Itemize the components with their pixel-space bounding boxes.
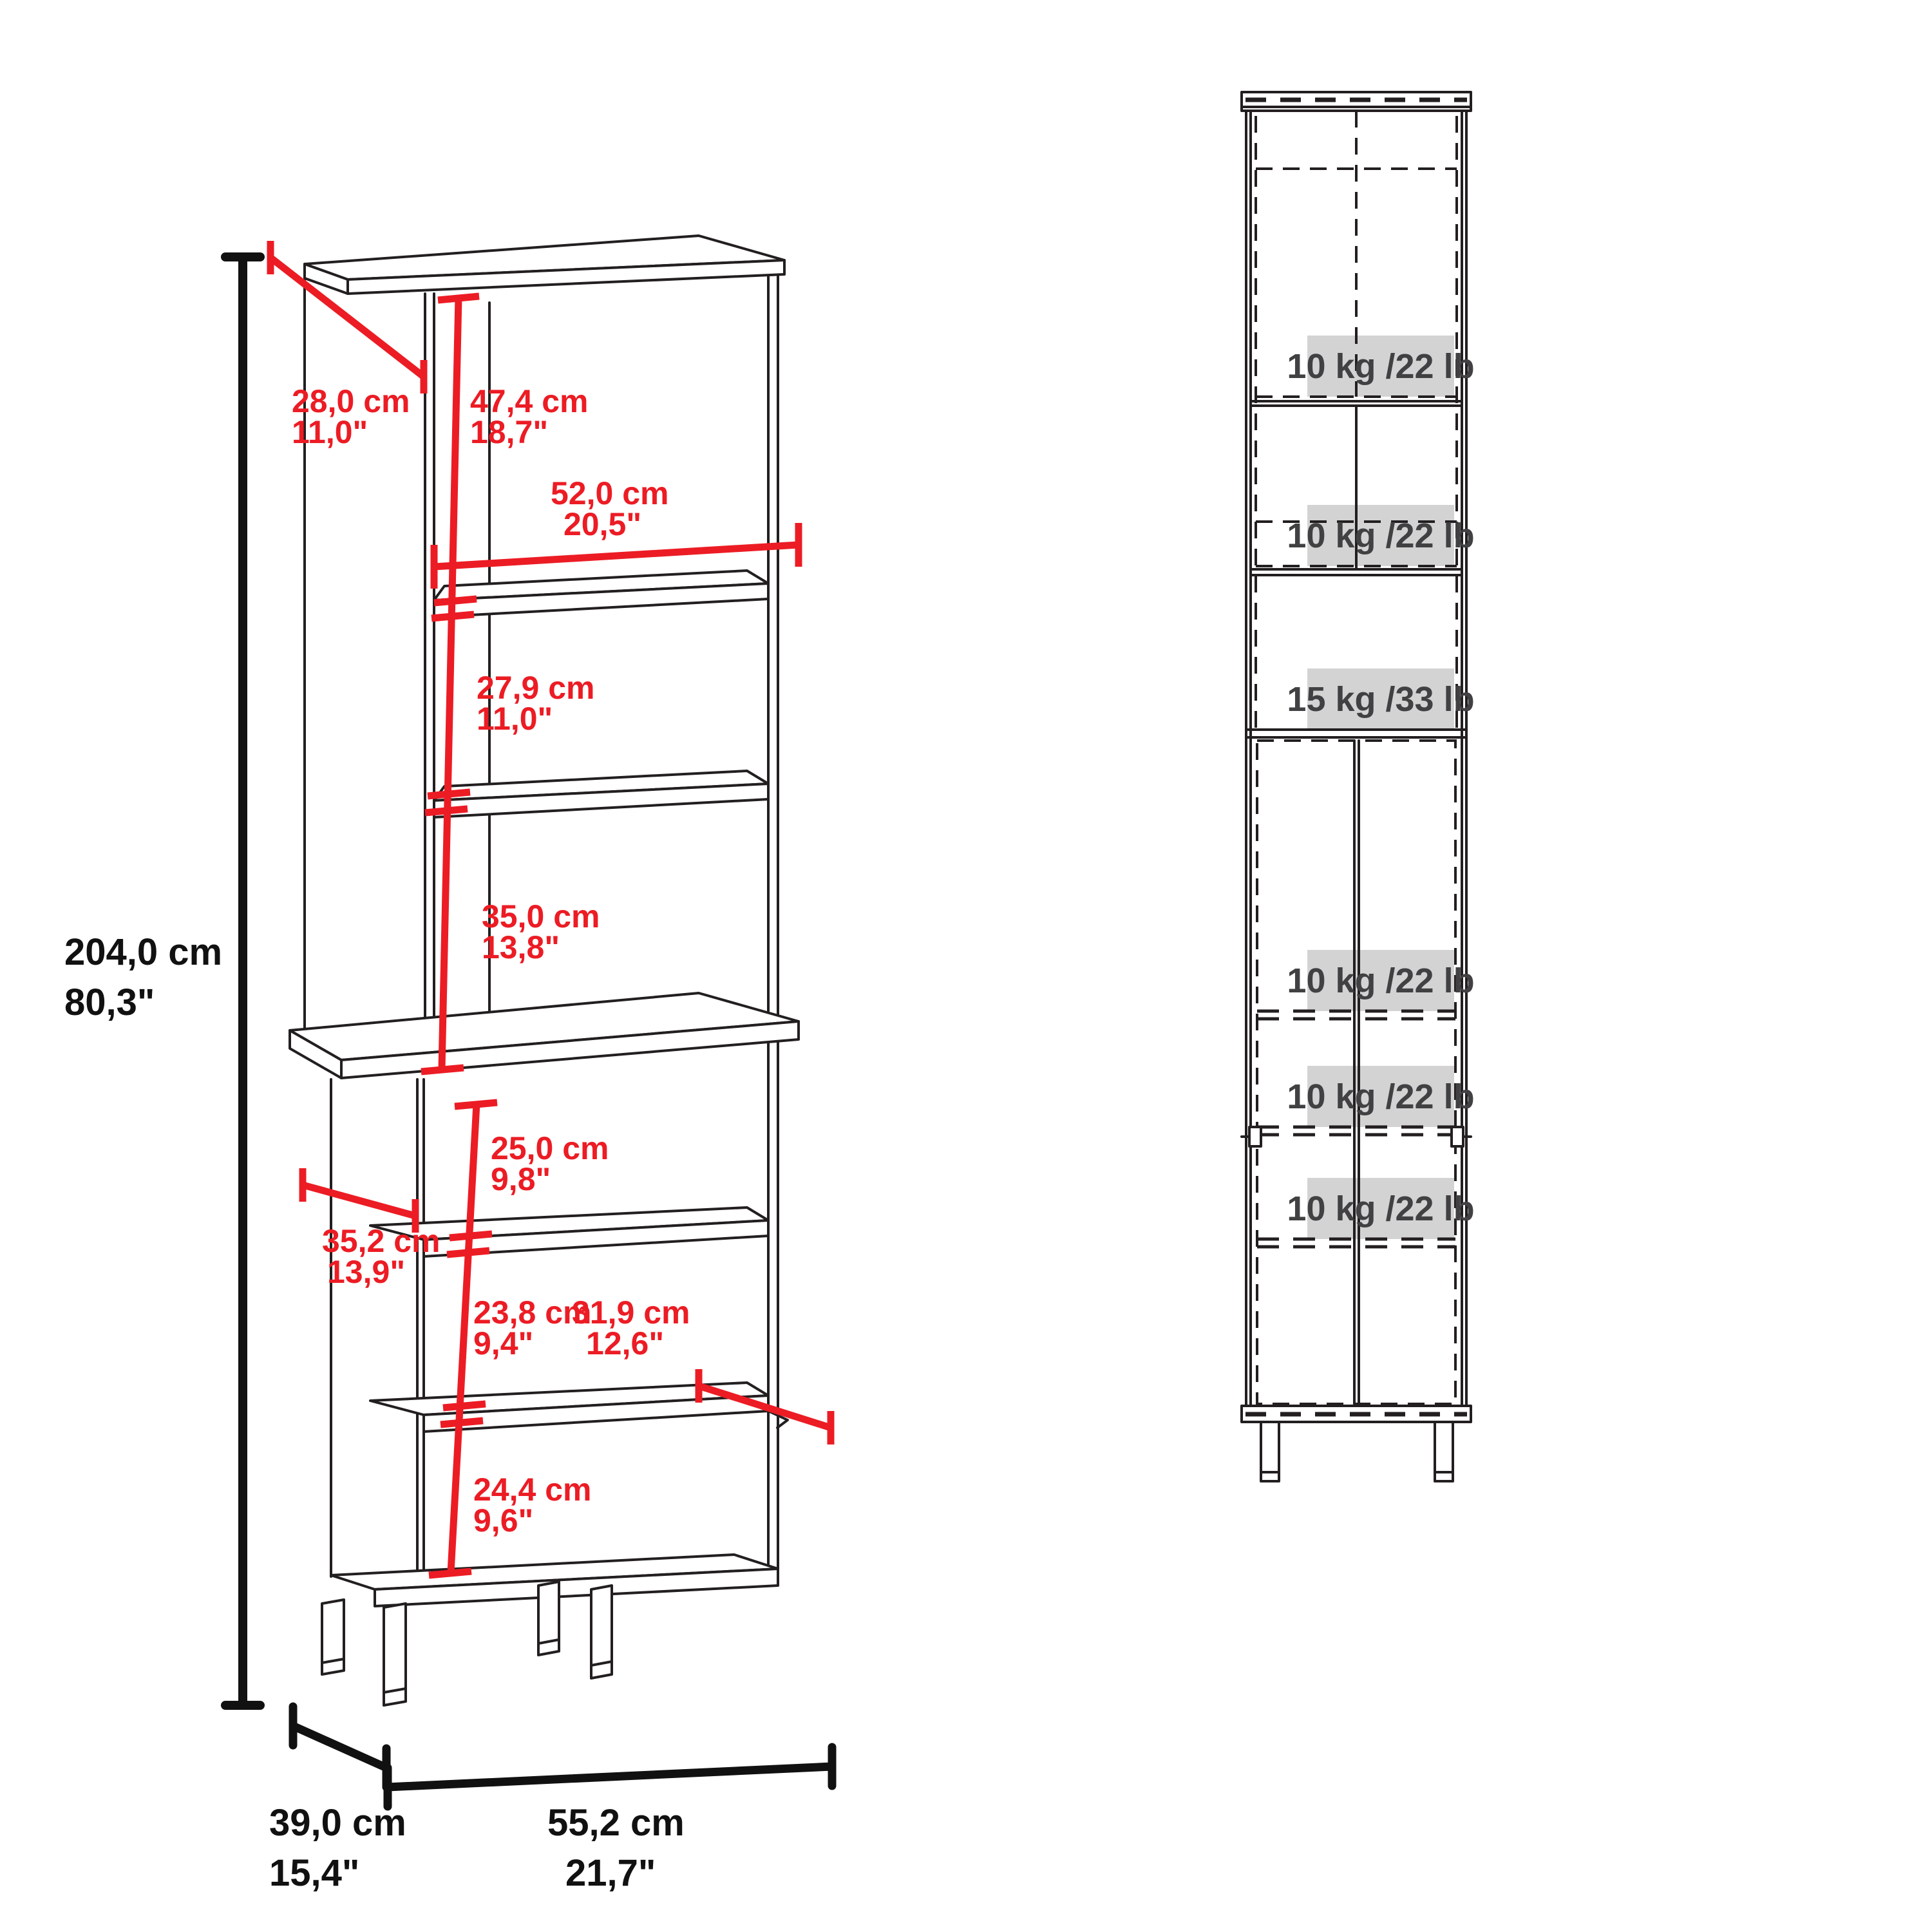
hinge-right (1452, 1127, 1463, 1146)
base-mid-label-in: 9,4" (473, 1325, 533, 1361)
base-hidden-shelf-3 (1257, 1239, 1455, 1247)
left-view-perspective-drawing: 204,0 cm 80,3" 28,0 cm 11,0" 47,4 cm 18,… (64, 236, 832, 1894)
hinge-left (1249, 1127, 1261, 1146)
base-depth-label-in: 13,9" (327, 1254, 405, 1290)
furniture-dimension-diagram-page: 204,0 cm 80,3" 28,0 cm 11,0" 47,4 cm 18,… (0, 0, 1932, 1932)
hutch-bottom-label-in: 13,8" (482, 929, 560, 965)
right-view-front-elevation: 10 kg /22 lb 10 kg /22 lb 15 kg /33 lb 1… (1242, 92, 1475, 1481)
hutch-mid-label-in: 11,0" (477, 701, 553, 737)
bottom-depth-dim-line (293, 1707, 386, 1787)
dim-overall-height: 204,0 cm 80,3" (64, 257, 260, 1705)
base-hidden-shelf-2 (1257, 1127, 1455, 1135)
bottom-width-label-cm: 55,2 cm (547, 1802, 685, 1844)
dim-bottom-width: 55,2 cm 21,7" (388, 1747, 832, 1894)
bottom-width-dim-line (388, 1747, 832, 1806)
dim-base-sections: 25,0 cm 9,8" 23,8 cm 9,4" 24,4 cm 9,6" (429, 1103, 609, 1575)
capacity-label-4: 10 kg /22 lb (1287, 961, 1474, 1000)
diagram-canvas: 204,0 cm 80,3" 28,0 cm 11,0" 47,4 cm 18,… (0, 0, 1932, 1932)
dim-hutch-sections: 47,4 cm 18,7" 27,9 cm 11,0" 35,0 cm 13,8… (421, 296, 600, 1072)
dim-shelf-depth: 31,9 cm 12,6" (572, 1294, 831, 1444)
base-hidden-shelf-1 (1257, 1011, 1455, 1019)
front-view-legs (1261, 1422, 1453, 1481)
door-hinges (1242, 1127, 1471, 1146)
dim-base-depth: 35,2 cm 13,9" (303, 1168, 440, 1290)
capacity-label-2: 10 kg /22 lb (1287, 516, 1474, 555)
shelf-depth-label-in: 12,6" (586, 1325, 664, 1361)
capacity-label-3: 15 kg /33 lb (1287, 680, 1474, 719)
capacity-label-6: 10 kg /22 lb (1287, 1189, 1474, 1228)
base-top-label-in: 9,8" (491, 1161, 551, 1197)
base-bottom-label-in: 9,6" (473, 1502, 533, 1539)
overall-height-label-in: 80,3" (64, 981, 155, 1023)
capacity-label-1: 10 kg /22 lb (1287, 347, 1474, 386)
overall-height-dim-line (225, 257, 260, 1705)
interior-width-label-in: 20,5" (563, 506, 641, 542)
hutch-base-separation (1246, 730, 1466, 737)
bottom-depth-label-in: 15,4" (269, 1852, 359, 1894)
bottom-width-label-in: 21,7" (565, 1852, 656, 1894)
capacity-label-5: 10 kg /22 lb (1287, 1077, 1474, 1116)
hutch-top-label-in: 18,7" (470, 414, 548, 450)
overall-height-label-cm: 204,0 cm (64, 931, 222, 973)
top-depth-label-in: 11,0" (292, 414, 368, 450)
